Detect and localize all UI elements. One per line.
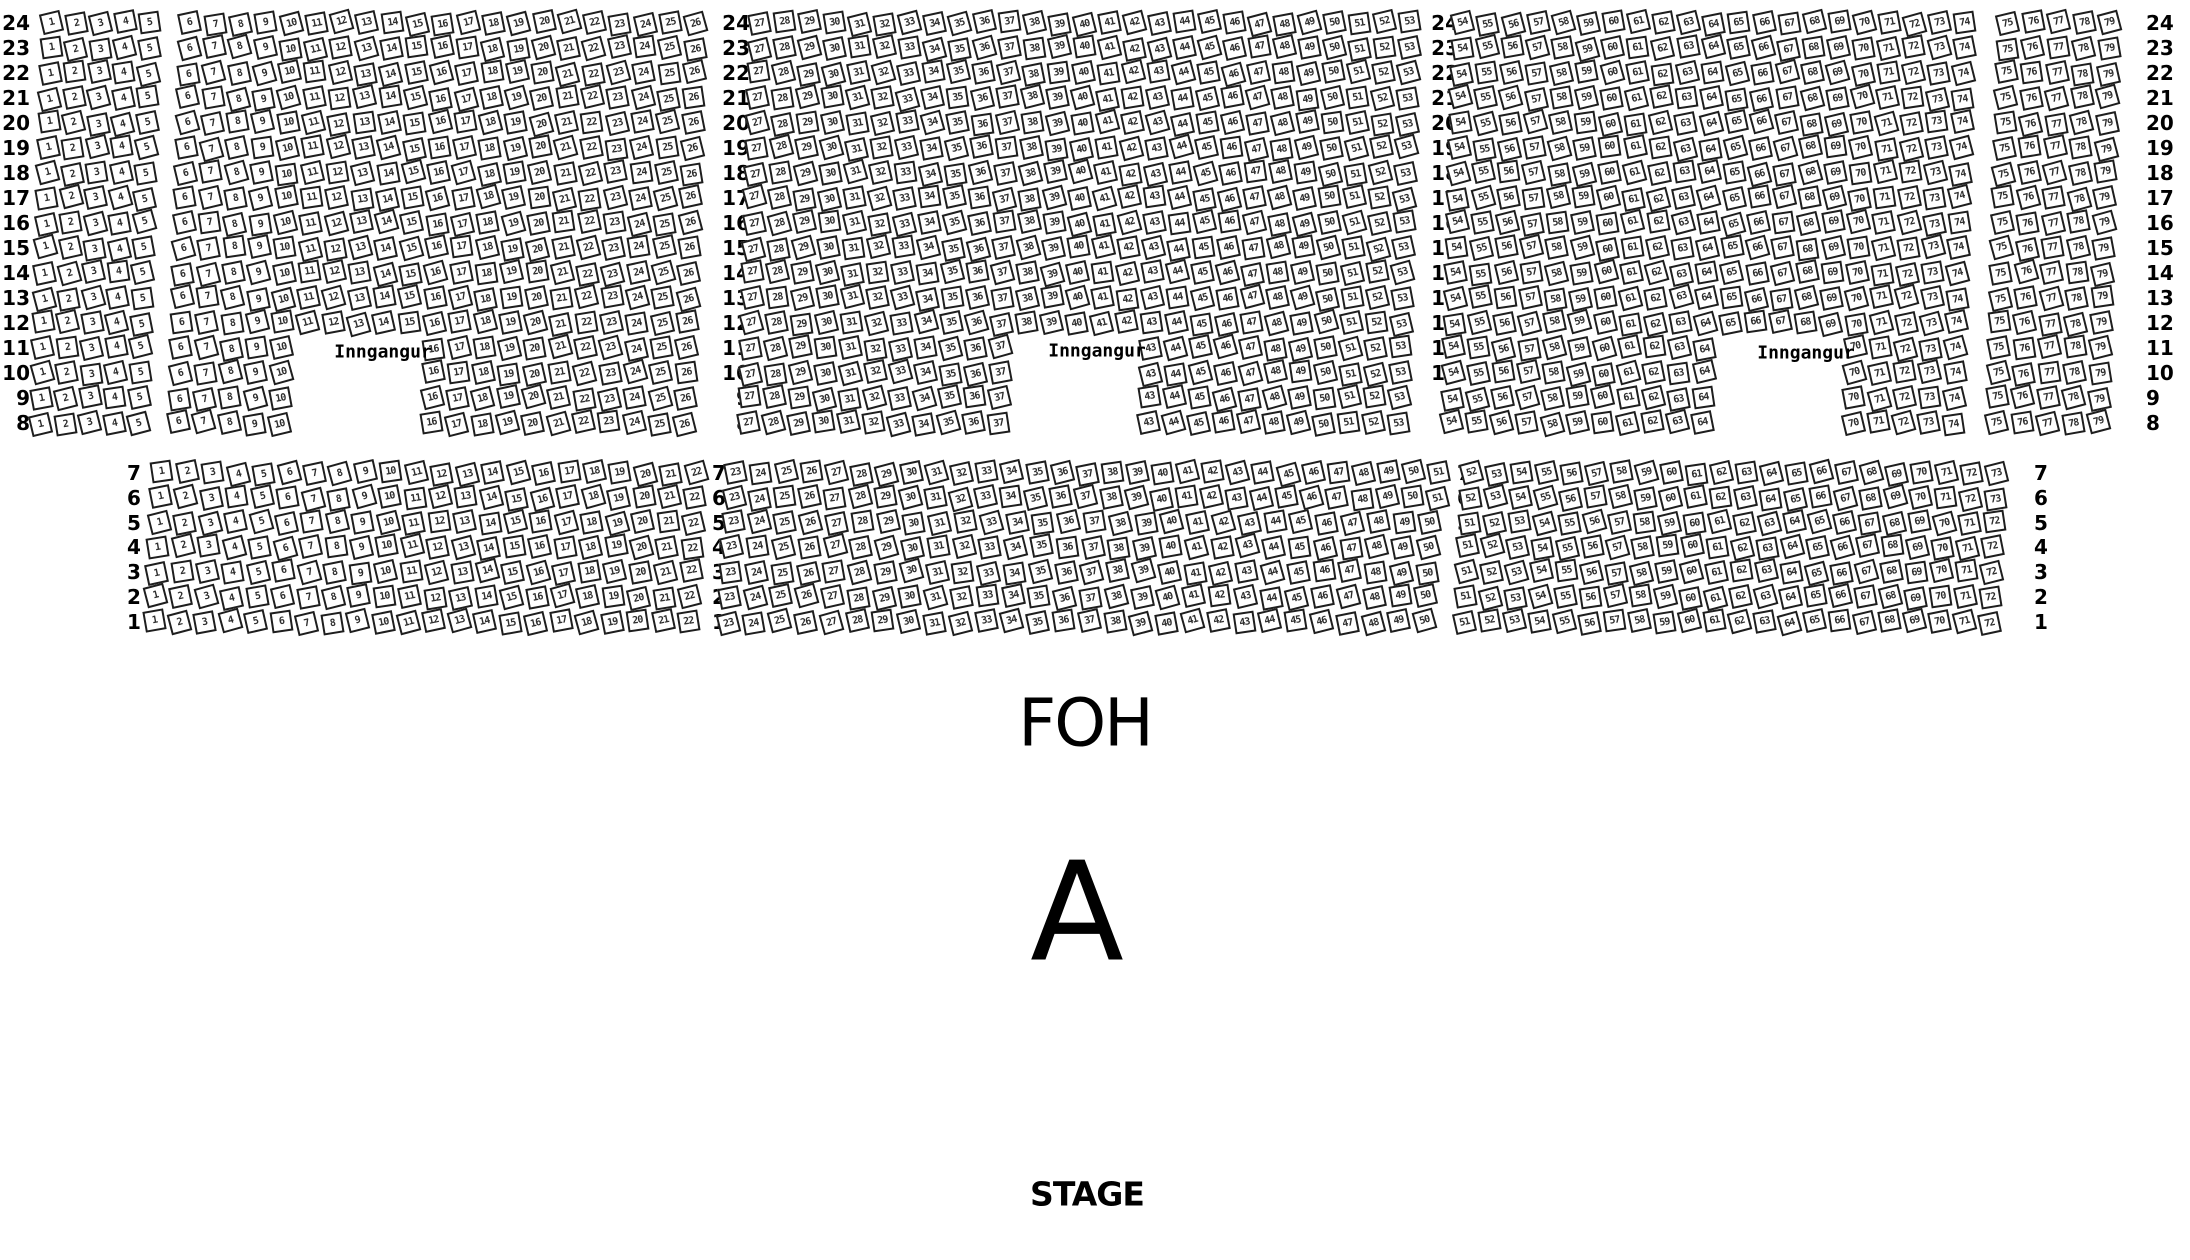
seat[interactable]: 73	[1926, 61, 1951, 86]
seat[interactable]: 60	[1676, 607, 1701, 632]
seat[interactable]: 70	[1929, 558, 1954, 583]
seat[interactable]: 43	[1235, 533, 1261, 559]
seat[interactable]: 55	[1555, 559, 1579, 583]
seat[interactable]: 27	[737, 362, 762, 387]
seat[interactable]: 43	[1144, 136, 1169, 161]
seat[interactable]: 49	[1289, 285, 1315, 311]
seat[interactable]: 40	[1066, 234, 1090, 258]
seat[interactable]: 47	[1336, 583, 1362, 609]
seat[interactable]: 79	[2086, 409, 2112, 435]
seat[interactable]: 54	[1450, 36, 1474, 60]
seat[interactable]: 53	[1387, 385, 1412, 410]
seat[interactable]: 57	[1517, 337, 1541, 361]
seat[interactable]: 22	[578, 161, 603, 186]
seat[interactable]: 48	[1360, 610, 1386, 636]
seat[interactable]: 14	[374, 208, 400, 234]
seat[interactable]: 56	[1493, 286, 1517, 310]
seat[interactable]: 36	[1049, 484, 1074, 509]
seat[interactable]: 23	[600, 261, 626, 287]
seat[interactable]: 7	[195, 284, 219, 308]
seat[interactable]: 59	[1657, 511, 1682, 536]
seat[interactable]: 69	[1883, 483, 1909, 509]
seat[interactable]: 38	[1016, 234, 1042, 260]
seat[interactable]: 38	[1018, 161, 1044, 187]
seat[interactable]: 57	[1518, 285, 1543, 310]
seat[interactable]: 11	[303, 59, 327, 83]
seat[interactable]: 32	[868, 160, 893, 185]
seat[interactable]: 40	[1159, 508, 1185, 534]
seat[interactable]: 77	[2040, 235, 2064, 259]
seat[interactable]: 58	[1547, 136, 1573, 162]
seat[interactable]: 78	[2063, 311, 2088, 336]
seat[interactable]: 35	[1029, 533, 1054, 558]
seat[interactable]: 57	[1522, 108, 1548, 134]
seat[interactable]: 53	[1394, 112, 1419, 137]
seat[interactable]: 72	[1981, 534, 2006, 559]
seat[interactable]: 78	[2072, 10, 2097, 35]
seat[interactable]: 34	[911, 412, 936, 437]
seat[interactable]: 48	[1266, 234, 1291, 259]
seat[interactable]: 62	[1726, 609, 1752, 635]
seat[interactable]: 66	[1750, 35, 1776, 61]
seat[interactable]: 70	[1908, 485, 1933, 510]
seat[interactable]: 53	[1389, 334, 1413, 358]
seat[interactable]: 45	[1196, 61, 1221, 86]
seat[interactable]: 52	[1369, 134, 1394, 159]
seat[interactable]: 55	[1553, 584, 1578, 609]
seat[interactable]: 36	[972, 9, 997, 34]
seat[interactable]: 51	[1338, 362, 1363, 387]
seat[interactable]: 17	[449, 260, 474, 285]
seat[interactable]: 44	[1249, 486, 1274, 511]
seat[interactable]: 67	[1777, 11, 1801, 35]
seat[interactable]: 22	[582, 10, 607, 35]
seat[interactable]: 71	[1953, 584, 1978, 609]
seat[interactable]: 45	[1288, 535, 1312, 559]
seat[interactable]: 37	[994, 109, 1019, 134]
seat[interactable]: 29	[793, 187, 817, 211]
seat[interactable]: 13	[348, 261, 372, 285]
seat[interactable]: 62	[1648, 109, 1673, 134]
seat[interactable]: 64	[1701, 12, 1726, 37]
seat[interactable]: 38	[1107, 537, 1131, 561]
seat[interactable]: 7	[201, 59, 227, 85]
seat[interactable]: 45	[1195, 86, 1220, 111]
seat[interactable]: 60	[1594, 285, 1618, 309]
seat[interactable]: 47	[1238, 335, 1263, 360]
seat[interactable]: 35	[946, 59, 971, 84]
seat[interactable]: 34	[1002, 561, 1026, 585]
seat[interactable]: 33	[978, 536, 1003, 561]
seat[interactable]: 41	[1174, 485, 1198, 509]
seat[interactable]: 35	[944, 136, 969, 161]
seat[interactable]: 12	[329, 8, 355, 34]
seat[interactable]: 58	[1546, 184, 1571, 209]
seat[interactable]: 60	[1599, 60, 1625, 86]
seat[interactable]: 62	[1644, 260, 1670, 286]
seat[interactable]: 15	[402, 137, 427, 162]
seat[interactable]: 54	[1441, 334, 1466, 359]
seat[interactable]: 61	[1618, 312, 1642, 336]
seat[interactable]: 70	[1852, 36, 1876, 60]
seat[interactable]: 26	[673, 386, 698, 411]
seat[interactable]: 41	[1092, 186, 1118, 212]
seat[interactable]: 42	[1210, 536, 1235, 561]
seat[interactable]: 63	[1672, 136, 1697, 161]
seat[interactable]: 27	[737, 384, 761, 408]
seat[interactable]: 58	[1541, 361, 1565, 385]
seat[interactable]: 8	[225, 86, 251, 112]
seat[interactable]: 76	[2010, 384, 2035, 409]
seat[interactable]: 23	[598, 361, 623, 386]
seat[interactable]: 20	[528, 134, 553, 159]
seat[interactable]: 25	[648, 360, 673, 385]
seat[interactable]: 67	[1851, 610, 1876, 635]
seat[interactable]: 33	[894, 134, 919, 159]
seat[interactable]: 8	[224, 135, 249, 160]
seat[interactable]: 15	[504, 487, 529, 512]
seat[interactable]: 29	[789, 312, 813, 336]
seat[interactable]: 52	[1371, 60, 1396, 85]
seat[interactable]: 56	[1498, 85, 1524, 111]
seat[interactable]: 10	[277, 59, 302, 84]
seat[interactable]: 33	[891, 234, 915, 258]
seat[interactable]: 31	[837, 387, 861, 411]
seat[interactable]: 38	[1014, 310, 1038, 334]
seat[interactable]: 5	[245, 584, 269, 608]
seat[interactable]: 9	[250, 135, 274, 159]
seat[interactable]: 52	[1366, 259, 1391, 284]
seat[interactable]: 12	[421, 608, 446, 633]
seat[interactable]: 75	[1990, 210, 2015, 235]
seat[interactable]: 20	[525, 236, 550, 261]
seat[interactable]: 9	[254, 10, 278, 34]
seat[interactable]: 58	[1549, 61, 1574, 86]
seat[interactable]: 69	[1884, 462, 1909, 487]
seat[interactable]: 49	[1291, 211, 1317, 237]
seat[interactable]: 13	[352, 84, 377, 109]
seat[interactable]: 43	[1224, 486, 1248, 510]
seat[interactable]: 47	[1241, 236, 1265, 260]
seat[interactable]: 45	[1189, 312, 1213, 336]
seat[interactable]: 41	[1094, 109, 1120, 135]
seat[interactable]: 1	[142, 609, 166, 633]
seat[interactable]: 59	[1567, 336, 1592, 361]
seat[interactable]: 63	[1675, 86, 1699, 110]
seat[interactable]: 46	[1211, 386, 1237, 412]
seat[interactable]: 72	[1899, 111, 1924, 136]
seat[interactable]: 44	[1171, 60, 1197, 86]
seat[interactable]: 21	[550, 286, 574, 310]
seat[interactable]: 78	[2061, 411, 2085, 435]
seat[interactable]: 18	[480, 59, 504, 83]
seat[interactable]: 28	[770, 112, 795, 137]
seat[interactable]: 54	[1531, 510, 1557, 536]
seat[interactable]: 56	[1581, 534, 1606, 559]
seat[interactable]: 22	[575, 234, 601, 260]
seat[interactable]: 43	[1141, 259, 1166, 284]
seat[interactable]: 22	[683, 459, 709, 485]
seat[interactable]: 48	[1265, 285, 1290, 310]
seat[interactable]: 77	[2038, 286, 2064, 312]
seat[interactable]: 41	[1093, 160, 1118, 185]
seat[interactable]: 59	[1574, 84, 1599, 109]
seat[interactable]: 65	[1804, 561, 1830, 587]
seat[interactable]: 46	[1216, 235, 1241, 260]
seat[interactable]: 27	[743, 162, 768, 187]
seat[interactable]: 24	[633, 12, 658, 37]
seat[interactable]: 37	[992, 209, 1016, 233]
seat[interactable]: 14	[376, 135, 402, 161]
seat[interactable]: 9	[242, 386, 268, 412]
seat[interactable]: 21	[657, 484, 682, 509]
seat[interactable]: 41	[1094, 135, 1118, 159]
seat[interactable]: 16	[431, 12, 455, 36]
seat[interactable]: 60	[1599, 86, 1624, 111]
seat[interactable]: 6	[172, 210, 197, 235]
seat[interactable]: 36	[1049, 460, 1074, 485]
seat[interactable]: 37	[1078, 586, 1102, 610]
seat[interactable]: 77	[2044, 112, 2068, 136]
seat[interactable]: 68	[1797, 186, 1822, 211]
seat[interactable]: 69	[1820, 261, 1844, 285]
seat[interactable]: 47	[1240, 262, 1265, 287]
seat[interactable]: 48	[1266, 260, 1290, 284]
seat[interactable]: 47	[1241, 210, 1266, 235]
seat[interactable]: 62	[1645, 235, 1670, 260]
seat[interactable]: 9	[345, 608, 370, 633]
seat[interactable]: 24	[622, 385, 647, 410]
seat[interactable]: 55	[1469, 236, 1494, 261]
seat[interactable]: 12	[326, 112, 351, 137]
seat[interactable]: 1	[37, 109, 61, 133]
seat[interactable]: 39	[1130, 558, 1156, 584]
seat[interactable]: 64	[1700, 34, 1725, 59]
seat[interactable]: 61	[1626, 35, 1650, 59]
seat[interactable]: 55	[1555, 536, 1580, 561]
seat[interactable]: 4	[104, 310, 129, 335]
seat[interactable]: 64	[1699, 85, 1724, 110]
seat[interactable]: 3	[193, 584, 219, 610]
seat[interactable]: 37	[990, 260, 1016, 286]
seat[interactable]: 28	[763, 362, 787, 386]
seat[interactable]: 30	[899, 460, 924, 485]
seat[interactable]: 68	[1881, 534, 1905, 558]
seat[interactable]: 43	[1136, 410, 1161, 435]
seat[interactable]: 67	[1773, 136, 1799, 162]
seat[interactable]: 75	[1995, 37, 2019, 61]
seat[interactable]: 79	[2091, 236, 2116, 261]
seat[interactable]: 34	[920, 85, 945, 110]
seat[interactable]: 53	[1390, 286, 1415, 311]
seat[interactable]: 37	[1073, 483, 1098, 508]
seat[interactable]: 39	[1040, 284, 1065, 309]
seat[interactable]: 48	[1262, 359, 1287, 384]
seat[interactable]: 17	[446, 334, 471, 359]
seat[interactable]: 56	[1493, 259, 1518, 284]
seat[interactable]: 67	[1772, 210, 1796, 234]
seat[interactable]: 68	[1794, 284, 1819, 309]
seat[interactable]: 14	[371, 310, 396, 335]
seat[interactable]: 31	[843, 158, 869, 184]
seat[interactable]: 4	[109, 160, 134, 185]
seat[interactable]: 19	[498, 310, 523, 335]
seat[interactable]: 79	[2090, 262, 2115, 287]
seat[interactable]: 42	[1121, 85, 1145, 109]
seat[interactable]: 30	[812, 409, 836, 433]
seat[interactable]: 4	[225, 461, 250, 486]
seat[interactable]: 41	[1181, 583, 1206, 608]
seat[interactable]: 44	[1173, 9, 1197, 33]
seat[interactable]: 62	[1646, 186, 1672, 212]
seat[interactable]: 5	[133, 135, 159, 161]
seat[interactable]: 69	[1825, 86, 1850, 111]
seat[interactable]: 31	[924, 559, 949, 584]
seat[interactable]: 5	[137, 36, 162, 61]
seat[interactable]: 72	[1898, 159, 1922, 183]
seat[interactable]: 45	[1197, 9, 1222, 34]
seat[interactable]: 53	[1387, 411, 1411, 435]
seat[interactable]: 17	[453, 86, 479, 112]
seat[interactable]: 79	[2088, 361, 2112, 385]
seat[interactable]: 71	[1869, 284, 1894, 309]
seat[interactable]: 43	[1144, 110, 1170, 136]
seat[interactable]: 51	[1339, 310, 1364, 335]
seat[interactable]: 29	[792, 209, 817, 234]
seat[interactable]: 79	[2087, 387, 2112, 412]
seat[interactable]: 58	[1627, 608, 1652, 633]
seat[interactable]: 30	[898, 558, 924, 584]
seat[interactable]: 29	[787, 359, 812, 384]
seat[interactable]: 6	[174, 136, 199, 161]
seat[interactable]: 5	[251, 462, 275, 486]
seat[interactable]: 60	[1598, 134, 1622, 158]
seat[interactable]: 37	[990, 286, 1014, 310]
seat[interactable]: 62	[1646, 209, 1670, 233]
seat[interactable]: 5	[128, 334, 153, 359]
seat[interactable]: 20	[527, 159, 552, 184]
seat[interactable]: 3	[195, 559, 220, 584]
seat[interactable]: 11	[302, 85, 327, 110]
seat[interactable]: 30	[816, 235, 841, 260]
seat[interactable]: 6	[270, 583, 295, 608]
seat[interactable]: 16	[427, 109, 452, 134]
seat[interactable]: 34	[918, 162, 943, 187]
seat[interactable]: 23	[722, 485, 747, 510]
seat[interactable]: 70	[1931, 510, 1957, 536]
seat[interactable]: 25	[656, 87, 681, 112]
seat[interactable]: 49	[1392, 510, 1416, 534]
seat[interactable]: 63	[1756, 510, 1782, 536]
seat[interactable]: 41	[1175, 459, 1200, 484]
seat[interactable]: 2	[173, 484, 199, 510]
seat[interactable]: 3	[85, 160, 109, 184]
seat[interactable]: 67	[1768, 309, 1793, 334]
seat[interactable]: 49	[1289, 311, 1314, 336]
seat[interactable]: 18	[577, 559, 601, 583]
seat[interactable]: 48	[1264, 311, 1290, 337]
seat[interactable]: 55	[1467, 336, 1491, 360]
seat[interactable]: 33	[890, 260, 915, 285]
seat[interactable]: 31	[840, 262, 865, 287]
seat[interactable]: 39	[1046, 60, 1070, 84]
seat[interactable]: 32	[953, 509, 978, 534]
seat[interactable]: 18	[479, 85, 504, 110]
seat[interactable]: 15	[400, 159, 426, 185]
seat[interactable]: 6	[171, 262, 196, 287]
seat[interactable]: 52	[1480, 533, 1506, 559]
seat[interactable]: 46	[1313, 536, 1338, 561]
seat[interactable]: 61	[1618, 286, 1644, 312]
seat[interactable]: 20	[529, 86, 554, 111]
seat[interactable]: 61	[1616, 386, 1641, 411]
seat[interactable]: 74	[1947, 210, 1971, 234]
seat[interactable]: 71	[1876, 60, 1900, 84]
seat[interactable]: 58	[1628, 583, 1652, 607]
seat[interactable]: 44	[1167, 212, 1191, 236]
seat[interactable]: 32	[949, 461, 974, 486]
seat[interactable]: 40	[1150, 461, 1174, 485]
seat[interactable]: 63	[1668, 283, 1694, 309]
seat[interactable]: 61	[1706, 509, 1731, 534]
seat[interactable]: 10	[276, 84, 302, 110]
seat[interactable]: 12	[325, 160, 349, 184]
seat[interactable]: 42	[1199, 484, 1224, 509]
seat[interactable]: 31	[844, 137, 869, 162]
seat[interactable]: 56	[1579, 559, 1604, 584]
seat[interactable]: 17	[454, 61, 479, 86]
seat[interactable]: 71	[1870, 262, 1894, 286]
seat[interactable]: 58	[1548, 110, 1573, 135]
seat[interactable]: 37	[1077, 608, 1102, 633]
seat[interactable]: 72	[1896, 236, 1920, 260]
seat[interactable]: 70	[1844, 312, 1868, 336]
seat[interactable]: 23	[602, 211, 626, 235]
seat[interactable]: 46	[1214, 312, 1239, 337]
seat[interactable]: 26	[674, 334, 699, 359]
seat[interactable]: 48	[1268, 159, 1293, 184]
seat[interactable]: 16	[527, 534, 552, 559]
seat[interactable]: 61	[1621, 187, 1646, 212]
seat[interactable]: 21	[545, 411, 571, 437]
seat[interactable]: 79	[2089, 310, 2114, 335]
seat[interactable]: 64	[1697, 159, 1722, 184]
seat[interactable]: 35	[1025, 461, 1050, 486]
seat[interactable]: 62	[1648, 136, 1672, 160]
seat[interactable]: 75	[1986, 335, 2011, 360]
seat[interactable]: 30	[813, 361, 838, 386]
seat[interactable]: 45	[1286, 560, 1311, 585]
seat[interactable]: 36	[970, 86, 995, 111]
seat[interactable]: 17	[450, 212, 475, 237]
seat[interactable]: 42	[1114, 309, 1139, 334]
seat[interactable]: 45	[1188, 334, 1213, 359]
seat[interactable]: 51	[1341, 209, 1367, 235]
seat[interactable]: 26	[680, 136, 705, 161]
seat[interactable]: 25	[771, 535, 796, 560]
seat[interactable]: 58	[1543, 287, 1567, 311]
seat[interactable]: 11	[396, 609, 422, 635]
seat[interactable]: 28	[765, 285, 789, 309]
seat[interactable]: 71	[1868, 336, 1892, 360]
seat[interactable]: 2	[53, 386, 78, 411]
seat[interactable]: 33	[889, 285, 915, 311]
seat[interactable]: 13	[347, 286, 372, 311]
seat[interactable]: 46	[1213, 361, 1238, 386]
seat[interactable]: 54	[1445, 235, 1469, 259]
seat[interactable]: 24	[630, 109, 655, 134]
seat[interactable]: 67	[1855, 533, 1880, 558]
